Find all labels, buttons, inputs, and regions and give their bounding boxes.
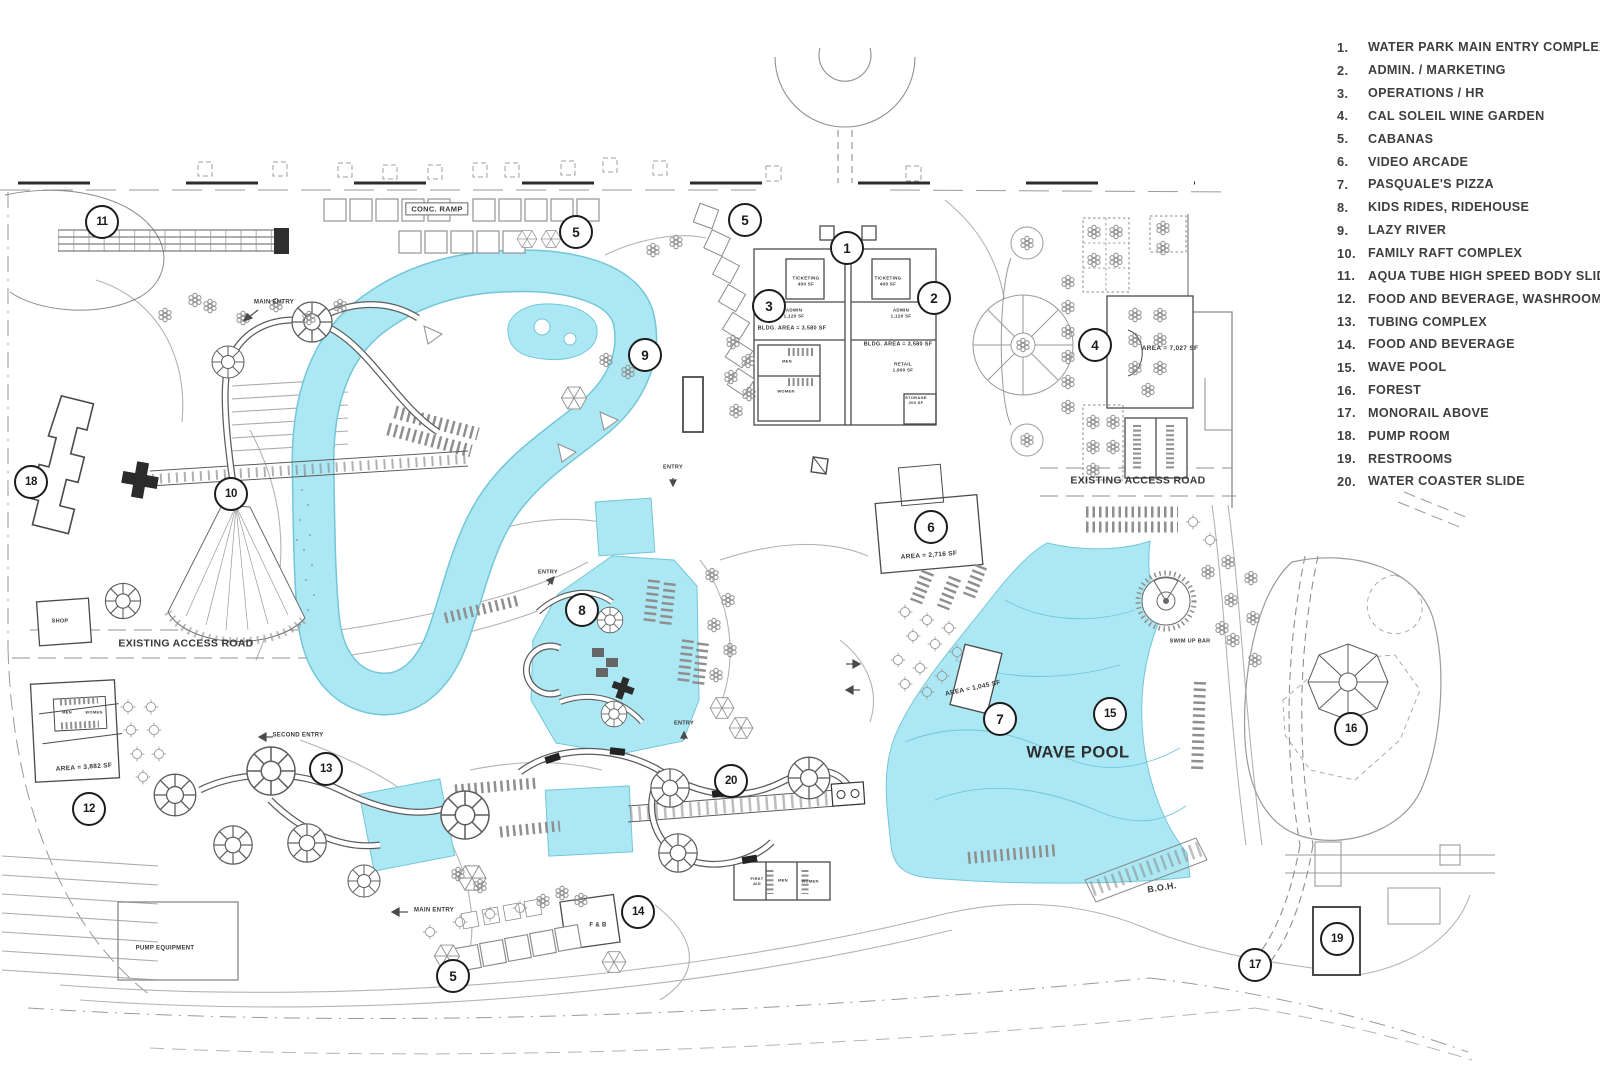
second-entry-label: SECOND ENTRY — [272, 732, 323, 740]
legend-item-label: MONORAIL ABOVE — [1368, 406, 1489, 420]
plan-marker-7: 7 — [983, 702, 1017, 736]
men-label-south: MEN — [778, 878, 788, 883]
legend-item-5: 5.CABANAS — [1337, 127, 1600, 150]
legend: 1.WATER PARK MAIN ENTRY COMPLEX2.ADMIN. … — [1337, 36, 1600, 493]
plan-marker-18: 18 — [14, 465, 48, 499]
legend-item-label: OPERATIONS / HR — [1368, 86, 1484, 100]
men-label-west: MEN — [62, 710, 72, 715]
garden-wheel — [973, 227, 1073, 456]
legend-item-label: FAMILY RAFT COMPLEX — [1368, 246, 1522, 260]
legend-item-14: 14.FOOD AND BEVERAGE — [1337, 333, 1600, 356]
legend-item-label: FOOD AND BEVERAGE — [1368, 337, 1515, 351]
legend-item-6: 6.VIDEO ARCADE — [1337, 150, 1600, 173]
legend-item-number: 19. — [1337, 451, 1368, 466]
plan-marker-20: 20 — [714, 764, 748, 798]
legend-item-label: KIDS RIDES, RIDEHOUSE — [1368, 200, 1529, 214]
legend-item-label: AQUA TUBE HIGH SPEED BODY SLIDE — [1368, 269, 1600, 283]
plan-marker-4: 4 — [1078, 328, 1112, 362]
entry-label-1: ENTRY — [538, 570, 558, 577]
ticketing-label-west: TICKETING 400 SF — [793, 275, 820, 286]
legend-item-label: FOREST — [1368, 383, 1421, 397]
legend-item-number: 15. — [1337, 360, 1368, 375]
legend-item-number: 17. — [1337, 405, 1368, 420]
legend-item-label: CABANAS — [1368, 132, 1433, 146]
women-label-west: WOMEN — [85, 710, 102, 715]
f-and-b-label: F & B — [589, 922, 606, 930]
men-label-entry: MEN — [782, 359, 792, 364]
women-label-south: WOMEN — [801, 879, 818, 884]
plan-marker-3: 3 — [752, 289, 786, 323]
main-entry-label-north: MAIN ENTRY — [254, 299, 294, 307]
tubing-pool-west-water — [359, 779, 454, 871]
legend-item-number: 10. — [1337, 246, 1368, 261]
legend-item-20: 20.WATER COASTER SLIDE — [1337, 470, 1600, 493]
bldg-area-label-east: BLDG. AREA = 3,580 SF — [864, 342, 933, 349]
plan-marker-10: 10 — [214, 477, 248, 511]
legend-item-number: 3. — [1337, 86, 1368, 101]
water-park-site-plan-page: 123455567891011121314151617181920 CONC. … — [0, 0, 1600, 1067]
legend-item-2: 2.ADMIN. / MARKETING — [1337, 59, 1600, 82]
legend-item-number: 18. — [1337, 428, 1368, 443]
legend-item-9: 9.LAZY RIVER — [1337, 219, 1600, 242]
legend-item-16: 16.FOREST — [1337, 379, 1600, 402]
legend-item-7: 7.PASQUALE'S PIZZA — [1337, 173, 1600, 196]
legend-item-label: VIDEO ARCADE — [1368, 155, 1468, 169]
legend-item-number: 14. — [1337, 337, 1368, 352]
island-pool-water — [508, 304, 597, 360]
pump-room-building — [25, 395, 101, 534]
legend-item-label: PASQUALE'S PIZZA — [1368, 177, 1494, 191]
legend-item-4: 4.CAL SOLEIL WINE GARDEN — [1337, 105, 1600, 128]
legend-item-13: 13.TUBING COMPLEX — [1337, 310, 1600, 333]
legend-list: 1.WATER PARK MAIN ENTRY COMPLEX2.ADMIN. … — [1337, 36, 1600, 493]
plan-marker-9: 9 — [628, 338, 662, 372]
legend-item-number: 20. — [1337, 474, 1368, 489]
swim-up-bar-label: SWIM UP BAR — [1170, 639, 1211, 646]
legend-item-number: 11. — [1337, 268, 1368, 283]
plan-marker-14: 14 — [621, 895, 655, 929]
admin-label-west: ADMIN 1,120 SF — [784, 307, 805, 318]
legend-item-label: FOOD AND BEVERAGE, WASHROOMS — [1368, 292, 1600, 306]
admin-label-east: ADMIN 1,120 SF — [891, 307, 912, 318]
legend-item-label: TUBING COMPLEX — [1368, 315, 1487, 329]
legend-item-number: 1. — [1337, 40, 1368, 55]
first-aid-label: FIRST AID — [750, 876, 763, 886]
wine-garden-area-label: AREA = 7,027 SF — [1142, 345, 1198, 353]
legend-item-number: 12. — [1337, 291, 1368, 306]
forest-pavilion — [1308, 644, 1388, 720]
women-label-entry: WOMEN — [777, 389, 794, 394]
plan-marker-15: 15 — [1093, 697, 1127, 731]
legend-item-label: WATER PARK MAIN ENTRY COMPLEX — [1368, 40, 1600, 54]
legend-item-label: ADMIN. / MARKETING — [1368, 63, 1506, 77]
existing-access-road-east: EXISTING ACCESS ROAD — [1070, 474, 1205, 487]
legend-item-17: 17.MONORAIL ABOVE — [1337, 402, 1600, 425]
legend-item-number: 13. — [1337, 314, 1368, 329]
plan-marker-13: 13 — [309, 752, 343, 786]
legend-item-label: WATER COASTER SLIDE — [1368, 474, 1525, 488]
pump-equipment-label: PUMP EQUIPMENT — [136, 945, 195, 953]
storage-label: STORAGE 200 SF — [905, 395, 927, 405]
legend-item-10: 10.FAMILY RAFT COMPLEX — [1337, 242, 1600, 265]
conc-ramp-label: CONC. RAMP — [405, 202, 468, 215]
shop-label: SHOP — [52, 619, 69, 626]
plan-marker-16: 16 — [1334, 712, 1368, 746]
legend-item-number: 2. — [1337, 63, 1368, 78]
plan-marker-6: 6 — [914, 510, 948, 544]
plan-marker-11: 11 — [85, 205, 119, 239]
plan-marker-2: 2 — [917, 281, 951, 315]
splash-pool-water — [595, 498, 655, 556]
plan-marker-17: 17 — [1238, 948, 1272, 982]
legend-item-1: 1.WATER PARK MAIN ENTRY COMPLEX — [1337, 36, 1600, 59]
existing-access-road-west: EXISTING ACCESS ROAD — [118, 637, 253, 650]
plan-marker-12: 12 — [72, 792, 106, 826]
legend-item-number: 6. — [1337, 154, 1368, 169]
legend-item-15: 15.WAVE POOL — [1337, 356, 1600, 379]
legend-item-number: 5. — [1337, 131, 1368, 146]
ticketing-label-east: TICKETING 400 SF — [875, 275, 902, 286]
legend-item-number: 7. — [1337, 177, 1368, 192]
retail-label: RETAIL 1,900 SF — [893, 361, 914, 372]
plan-marker-5c: 5 — [436, 959, 470, 993]
main-entry-label-south: MAIN ENTRY — [414, 907, 454, 915]
legend-item-3: 3.OPERATIONS / HR — [1337, 82, 1600, 105]
plan-marker-5b: 5 — [728, 203, 762, 237]
plan-marker-1: 1 — [830, 231, 864, 265]
legend-item-label: CAL SOLEIL WINE GARDEN — [1368, 109, 1545, 123]
legend-item-11: 11.AQUA TUBE HIGH SPEED BODY SLIDE — [1337, 264, 1600, 287]
legend-item-number: 9. — [1337, 223, 1368, 238]
aqua-tube-slide — [5, 190, 289, 310]
plan-marker-19: 19 — [1320, 922, 1354, 956]
plan-marker-8: 8 — [565, 593, 599, 627]
legend-item-label: LAZY RIVER — [1368, 223, 1446, 237]
legend-item-18: 18.PUMP ROOM — [1337, 424, 1600, 447]
bldg-area-label-west: BLDG. AREA = 3,580 SF — [758, 326, 827, 333]
legend-item-number: 8. — [1337, 200, 1368, 215]
legend-item-label: PUMP ROOM — [1368, 429, 1450, 443]
legend-item-12: 12.FOOD AND BEVERAGE, WASHROOMS — [1337, 287, 1600, 310]
legend-item-number: 16. — [1337, 383, 1368, 398]
wave-pool-label: WAVE POOL — [1026, 743, 1129, 764]
forest-area — [1245, 558, 1441, 841]
legend-item-19: 19.RESTROOMS — [1337, 447, 1600, 470]
entry-label-3: ENTRY — [663, 465, 683, 472]
legend-item-label: RESTROOMS — [1368, 452, 1452, 466]
legend-item-number: 4. — [1337, 108, 1368, 123]
plan-marker-5a: 5 — [559, 215, 593, 249]
legend-item-label: WAVE POOL — [1368, 360, 1446, 374]
entry-label-2: ENTRY — [674, 721, 694, 728]
legend-item-8: 8.KIDS RIDES, RIDEHOUSE — [1337, 196, 1600, 219]
